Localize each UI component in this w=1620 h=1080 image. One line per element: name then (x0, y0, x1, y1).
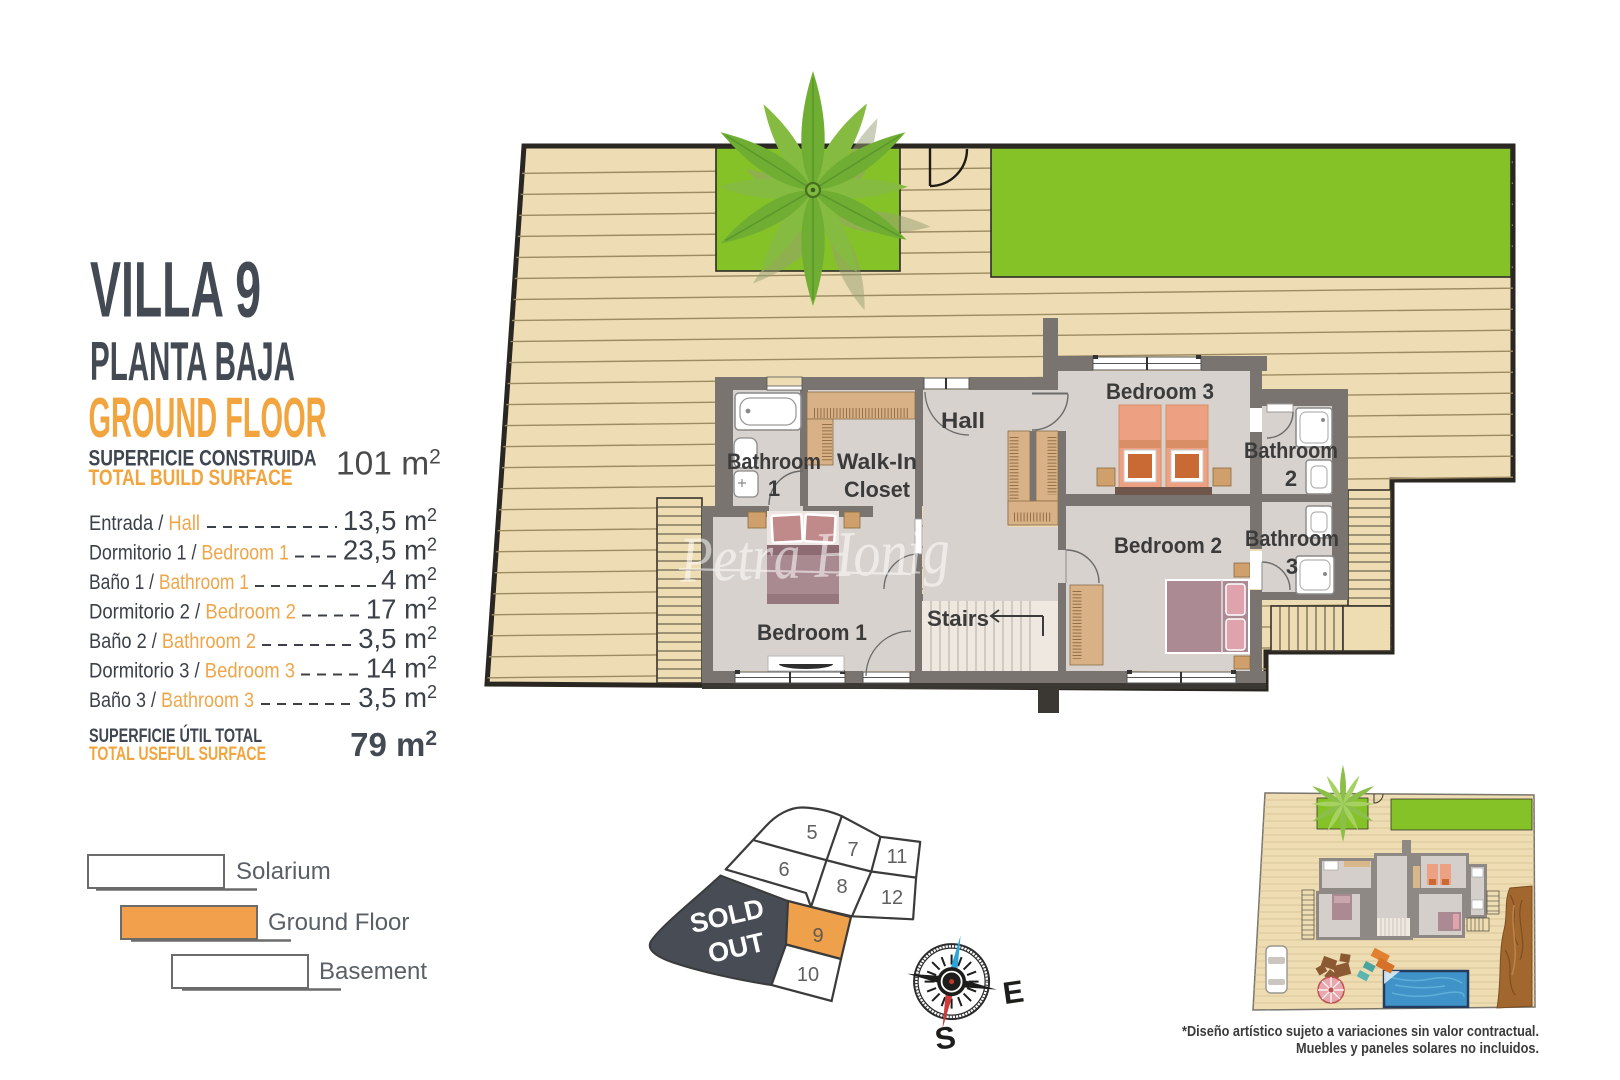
svg-text:PLANTA BAJA: PLANTA BAJA (90, 330, 295, 392)
svg-text:1: 1 (768, 476, 780, 501)
svg-text:Stairs: Stairs (927, 606, 989, 631)
svg-text:TOTAL BUILD SURFACE: TOTAL BUILD SURFACE (89, 465, 293, 490)
svg-text:Baño 2 / Bathroom 2: Baño 2 / Bathroom 2 (89, 630, 256, 653)
svg-text:Entrada / Hall: Entrada / Hall (89, 512, 200, 535)
svg-text:Baño 3 / Bathroom 3: Baño 3 / Bathroom 3 (89, 689, 254, 712)
svg-text:3,5 m2: 3,5 m2 (358, 682, 437, 713)
svg-text:Baño 1 / Bathroom 1: Baño 1 / Bathroom 1 (89, 571, 249, 594)
svg-text:TOTAL USEFUL SURFACE: TOTAL USEFUL SURFACE (89, 744, 266, 765)
svg-text:Dormitorio 3 / Bedroom 3: Dormitorio 3 / Bedroom 3 (89, 660, 295, 683)
svg-text:Closet: Closet (844, 477, 911, 502)
svg-text:9: 9 (812, 925, 823, 947)
svg-text:Hall: Hall (941, 408, 985, 433)
svg-text:Petra Honig: Petra Honig (678, 515, 951, 596)
svg-text:Basement: Basement (319, 958, 427, 985)
svg-text:Bathroom: Bathroom (727, 449, 821, 474)
svg-text:Walk-In: Walk-In (837, 449, 917, 474)
svg-text:Muebles y paneles solares no i: Muebles y paneles solares no incluidos. (1296, 1040, 1539, 1057)
svg-text:23,5 m2: 23,5 m2 (343, 535, 437, 566)
svg-text:17 m2: 17 m2 (366, 594, 437, 625)
svg-text:*Diseño artístico sujeto a var: *Diseño artístico sujeto a variaciones s… (1182, 1023, 1539, 1040)
svg-text:Bathroom: Bathroom (1245, 526, 1339, 551)
svg-text:10: 10 (797, 964, 819, 986)
svg-text:Bathroom: Bathroom (1244, 438, 1338, 463)
svg-text:Bedroom 2: Bedroom 2 (1114, 533, 1222, 558)
svg-text:12: 12 (881, 887, 903, 909)
svg-text:3: 3 (1286, 554, 1298, 579)
svg-text:8: 8 (836, 876, 847, 898)
svg-text:Solarium: Solarium (236, 858, 331, 885)
svg-text:Ground Floor: Ground Floor (268, 909, 409, 936)
svg-text:13,5 m2: 13,5 m2 (343, 505, 437, 536)
svg-text:101 m2: 101 m2 (336, 446, 441, 483)
svg-text:VILLA 9: VILLA 9 (90, 245, 261, 334)
svg-text:11: 11 (887, 846, 908, 868)
svg-text:7: 7 (847, 839, 858, 861)
svg-text:3,5 m2: 3,5 m2 (358, 623, 437, 654)
svg-text:Bedroom 3: Bedroom 3 (1106, 379, 1214, 404)
svg-text:2: 2 (1285, 466, 1297, 491)
svg-text:Bedroom 1: Bedroom 1 (757, 620, 867, 645)
svg-text:GROUND FLOOR: GROUND FLOOR (89, 386, 327, 450)
svg-text:5: 5 (806, 822, 817, 844)
svg-text:14 m2: 14 m2 (366, 653, 437, 684)
svg-text:6: 6 (778, 859, 789, 881)
svg-text:Dormitorio 2 / Bedroom 2: Dormitorio 2 / Bedroom 2 (89, 601, 296, 624)
svg-text:Dormitorio 1 / Bedroom 1: Dormitorio 1 / Bedroom 1 (89, 542, 289, 565)
svg-text:79 m2: 79 m2 (350, 726, 437, 763)
